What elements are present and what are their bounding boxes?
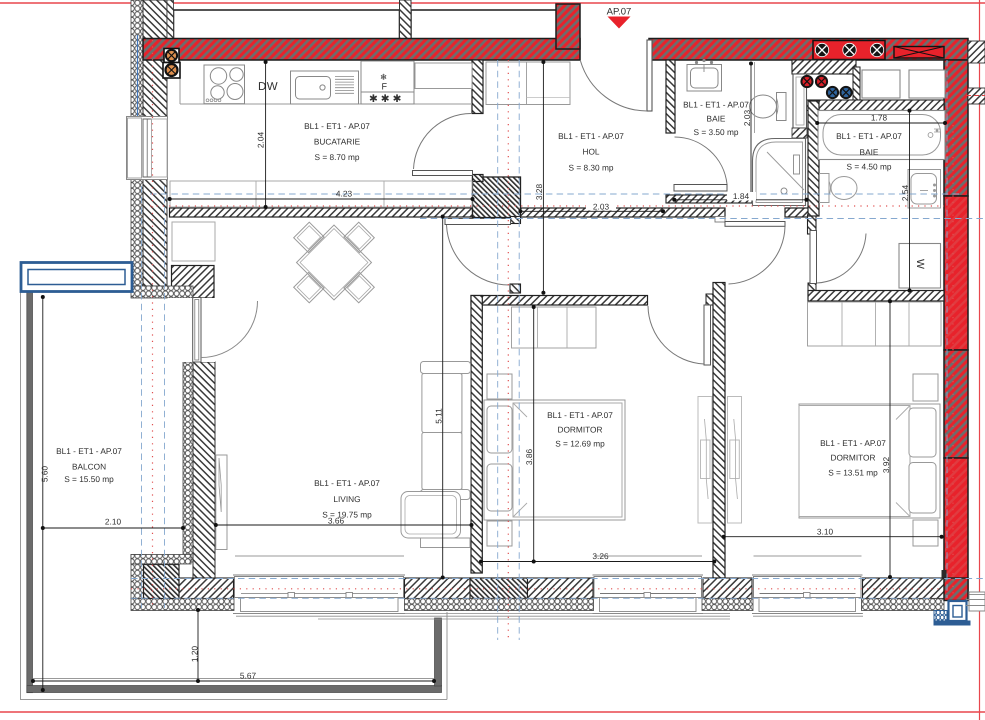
svg-text:S = 8.30 mp: S = 8.30 mp [569,163,614,173]
svg-text:S = 3.50 mp: S = 3.50 mp [694,127,739,137]
svg-text:S = 12.69 mp: S = 12.69 mp [555,439,605,449]
svg-text:BL1 - ET1 - AP.07: BL1 - ET1 - AP.07 [683,100,749,110]
svg-text:2.10: 2.10 [105,517,122,527]
svg-text:5.67: 5.67 [240,671,257,681]
svg-text:HOL: HOL [582,147,599,157]
svg-text:BAIE: BAIE [860,147,879,157]
svg-text:BL1 - ET1 - AP.07: BL1 - ET1 - AP.07 [820,438,886,448]
svg-text:3.26: 3.26 [592,551,609,561]
svg-text:AP.07: AP.07 [607,7,632,18]
svg-text:BL1 - ET1 - AP.07: BL1 - ET1 - AP.07 [314,478,380,488]
svg-text:BL1 - ET1 - AP.07: BL1 - ET1 - AP.07 [558,131,624,141]
svg-text:BUCATARIE: BUCATARIE [314,137,361,147]
svg-text:1.20: 1.20 [190,646,200,663]
svg-text:S = 13.51 mp: S = 13.51 mp [828,468,878,478]
svg-text:LIVING: LIVING [333,494,360,504]
svg-text:S = 8.70 mp: S = 8.70 mp [315,152,360,162]
svg-text:BAIE: BAIE [707,114,726,124]
svg-text:F: F [382,82,388,92]
svg-text:4.23: 4.23 [336,189,353,199]
svg-text:3.28: 3.28 [534,184,544,201]
svg-text:BL1 - ET1 - AP.07: BL1 - ET1 - AP.07 [547,410,613,420]
svg-text:✱✱✱: ✱✱✱ [369,93,404,105]
svg-text:❄: ❄ [380,72,387,82]
svg-text:3.92: 3.92 [881,457,891,474]
svg-text:BL1 - ET1 - AP.07: BL1 - ET1 - AP.07 [304,121,370,131]
svg-text:BL1 - ET1 - AP.07: BL1 - ET1 - AP.07 [836,131,902,141]
svg-text:2.03: 2.03 [593,202,610,212]
svg-text:1.84: 1.84 [733,191,750,201]
svg-text:DW: DW [258,81,278,93]
svg-text:BALCON: BALCON [72,462,106,472]
svg-text:2.03: 2.03 [742,110,752,127]
svg-text:2.54: 2.54 [900,185,910,202]
svg-text:S = 19.75 mp: S = 19.75 mp [322,510,372,520]
svg-text:DORMITOR: DORMITOR [830,453,875,463]
svg-text:5.11: 5.11 [434,408,444,424]
svg-text:3.10: 3.10 [817,527,834,537]
svg-text:BL1 - ET1 - AP.07: BL1 - ET1 - AP.07 [56,446,122,456]
svg-text:DORMITOR: DORMITOR [557,425,602,435]
svg-text:S = 4.50 mp: S = 4.50 mp [847,162,892,172]
svg-text:S = 15.50 mp: S = 15.50 mp [64,474,114,484]
svg-text:3.86: 3.86 [524,449,534,466]
svg-text:1.78: 1.78 [871,113,888,123]
svg-text:W: W [914,259,926,269]
svg-text:2.04: 2.04 [256,132,266,149]
svg-text:5.60: 5.60 [40,466,50,483]
